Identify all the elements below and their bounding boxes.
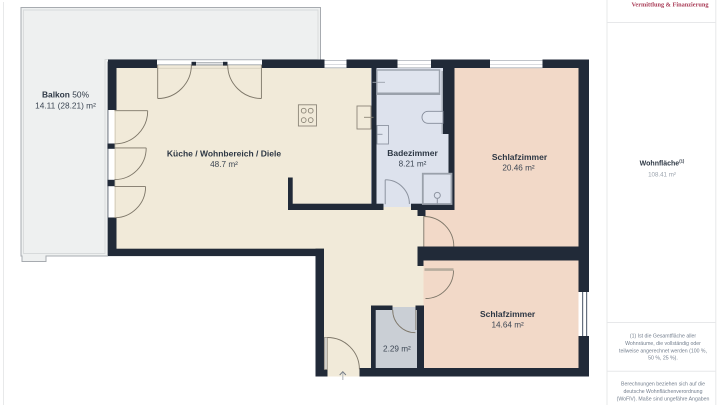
svg-text:108.41 m²: 108.41 m² <box>648 171 676 178</box>
svg-text:deutsche Wohnflächenverordnung: deutsche Wohnflächenverordnung <box>624 389 703 395</box>
svg-text:(WoFlV). Maße sind ungefähre A: (WoFlV). Maße sind ungefähre Angaben <box>617 396 710 402</box>
svg-text:Berechnungen beziehen sich auf: Berechnungen beziehen sich auf die <box>621 382 705 388</box>
svg-text:48.7 m²: 48.7 m² <box>210 160 238 169</box>
svg-text:14.11 (28.21) m²: 14.11 (28.21) m² <box>35 101 96 111</box>
svg-text:50 %, 25 %).: 50 %, 25 %). <box>648 356 678 362</box>
svg-text:2.29 m²: 2.29 m² <box>383 344 411 353</box>
svg-text:Balkon 50%: Balkon 50% <box>42 90 90 100</box>
svg-text:Küche / Wohnbereich / Diele: Küche / Wohnbereich / Diele <box>167 148 281 158</box>
svg-text:Badezimmer: Badezimmer <box>387 148 438 158</box>
svg-text:14.64 m²: 14.64 m² <box>491 320 524 329</box>
svg-text:Wohnfläche(1): Wohnfläche(1) <box>640 158 685 167</box>
svg-text:8.21 m²: 8.21 m² <box>399 160 427 169</box>
svg-text:teilweise angerechnet werden (: teilweise angerechnet werden (100 %, <box>619 348 707 354</box>
svg-text:Schlafzimmer: Schlafzimmer <box>480 309 536 319</box>
svg-text:(1) Ist die Gesamtfläche aller: (1) Ist die Gesamtfläche aller <box>630 334 697 340</box>
svg-text:20.46 m²: 20.46 m² <box>502 164 535 173</box>
svg-text:Vermittlung & Finanzierung: Vermittlung & Finanzierung <box>631 1 709 8</box>
svg-text:Wohnräume, die vollständig ode: Wohnräume, die vollständig oder <box>625 341 701 347</box>
svg-text:Schlafzimmer: Schlafzimmer <box>492 152 548 162</box>
